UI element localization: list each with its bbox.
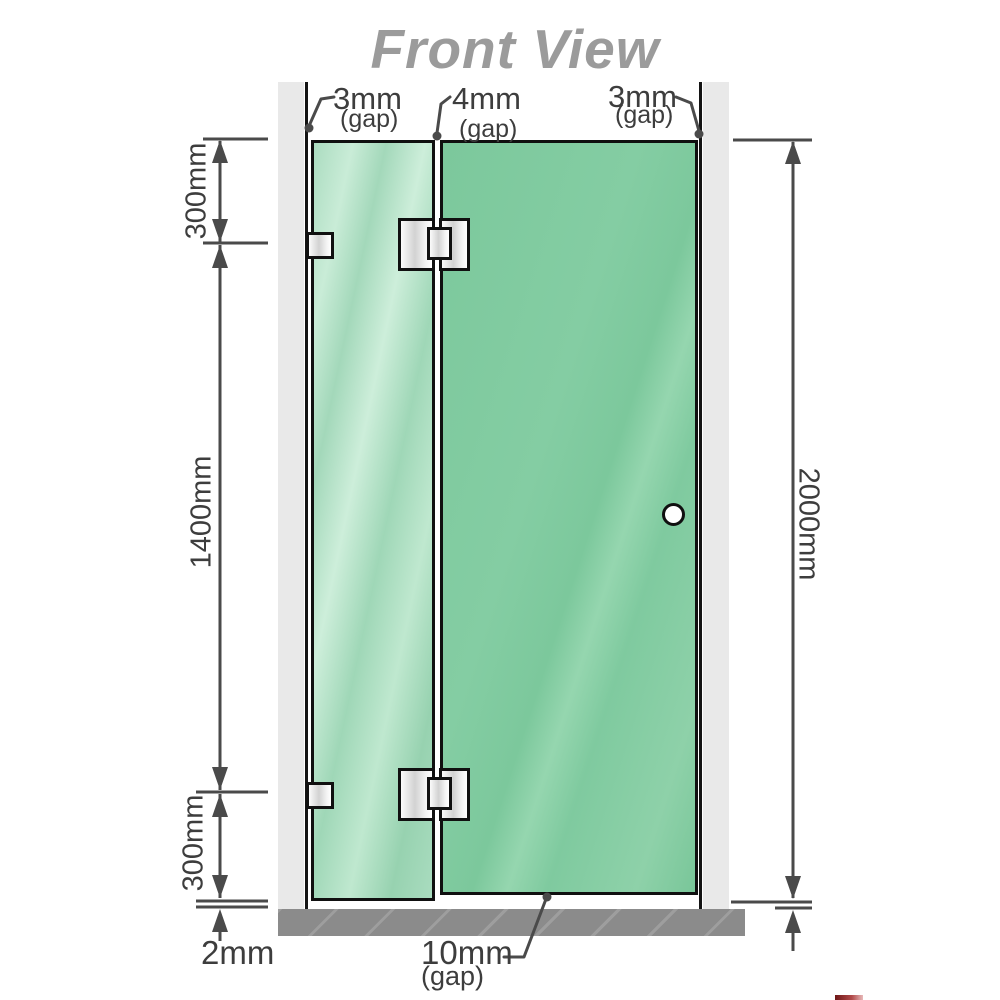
gap-leader-lines <box>309 97 699 957</box>
gap-middle-unit: (gap) <box>459 117 517 142</box>
page-title: Front View <box>370 22 659 77</box>
dim-bottom-300mm: 300mm <box>180 795 209 892</box>
gap-bottom-door-unit: (gap) <box>421 963 484 990</box>
gap-leader-dots <box>305 124 704 902</box>
dimension-lines-layer <box>0 0 1000 1000</box>
dim-middle-1400mm: 1400mm <box>188 456 217 569</box>
front-view-diagram: Front View 3mm (gap) 4mm (gap) 3mm (gap)… <box>0 0 1000 1000</box>
dim-top-300mm: 300mm <box>183 143 212 240</box>
red-corner-mark <box>835 995 863 1000</box>
gap-middle-value: 4mm <box>452 83 521 114</box>
gap-left-unit: (gap) <box>340 107 398 132</box>
dim-total-2000mm: 2000mm <box>794 468 823 581</box>
gap-right-unit: (gap) <box>615 103 673 128</box>
gap-bottom-panel-2mm: 2mm <box>201 936 274 969</box>
